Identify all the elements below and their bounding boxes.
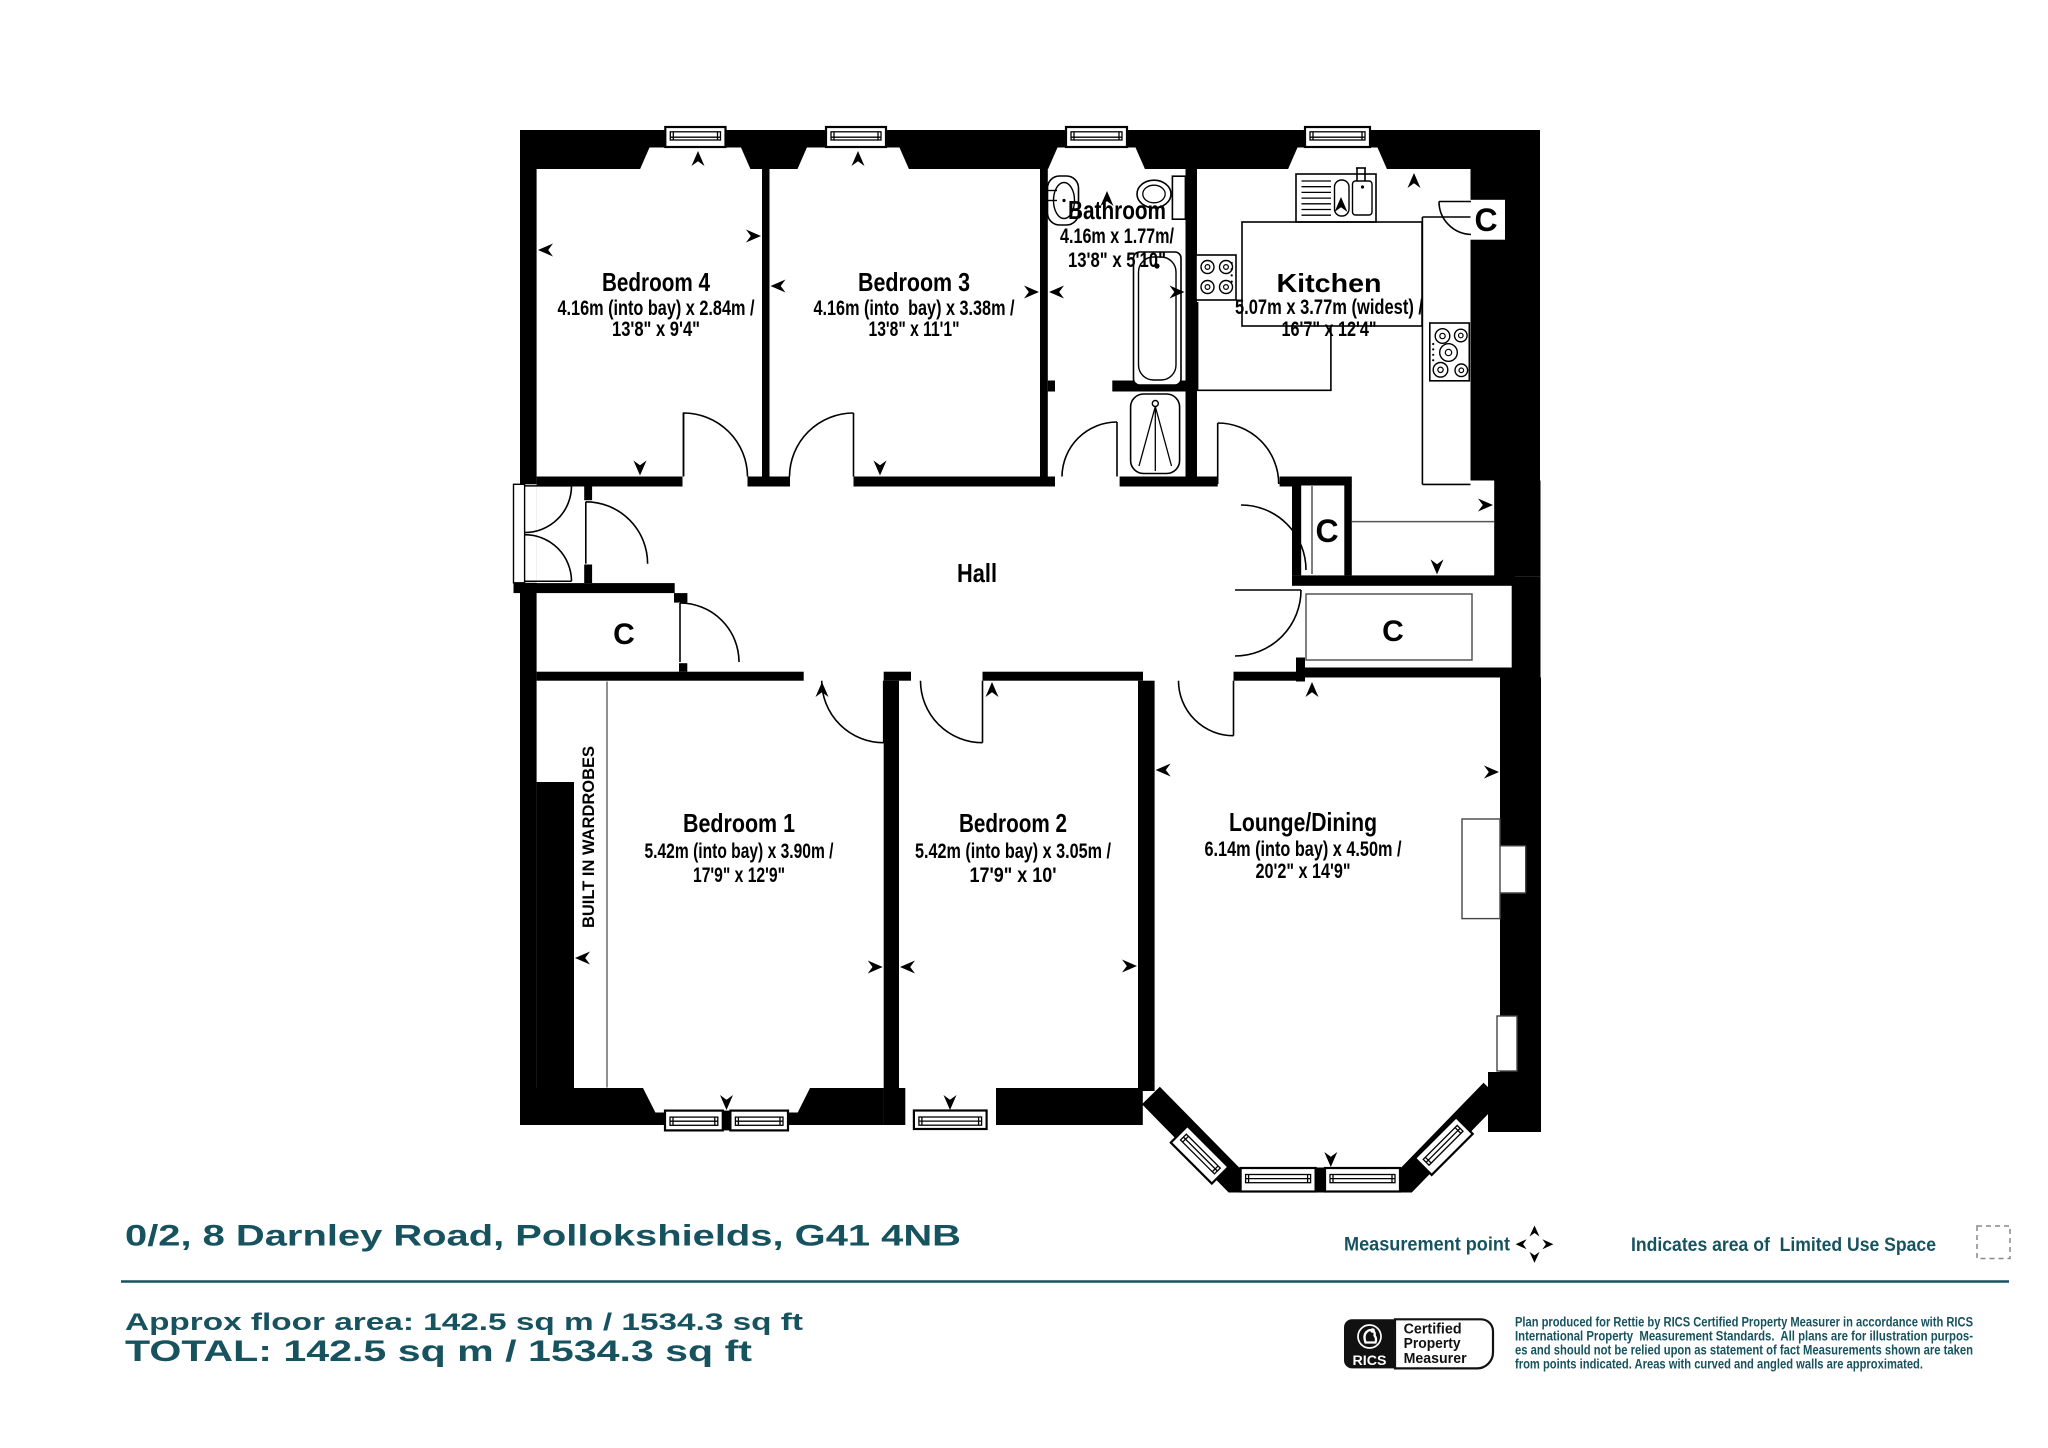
svg-text:Bedroom 1: Bedroom 1 bbox=[683, 808, 795, 838]
svg-text:13'8" x 5'10": 13'8" x 5'10" bbox=[1068, 249, 1166, 272]
svg-text:C: C bbox=[1474, 202, 1497, 238]
svg-text:TOTAL: 142.5 sq m / 1534.3 sq: TOTAL: 142.5 sq m / 1534.3 sq ft bbox=[125, 1335, 752, 1368]
svg-text:C: C bbox=[1382, 615, 1404, 648]
svg-text:20'2" x 14'9": 20'2" x 14'9" bbox=[1256, 860, 1351, 883]
svg-text:17'9" x 10': 17'9" x 10' bbox=[970, 864, 1057, 887]
svg-text:0/2, 8 Darnley Road, Pollokshi: 0/2, 8 Darnley Road, Pollokshields, G41 … bbox=[125, 1219, 961, 1252]
svg-text:es and should not be relied up: es and should not be relied upon as stat… bbox=[1515, 1342, 1973, 1357]
svg-text:Bedroom 2: Bedroom 2 bbox=[959, 808, 1067, 838]
svg-text:5.42m (into bay) x 3.90m /: 5.42m (into bay) x 3.90m / bbox=[645, 840, 834, 863]
svg-text:4.16m (into bay) x 2.84m /: 4.16m (into bay) x 2.84m / bbox=[558, 297, 755, 320]
svg-text:Approx floor area: 142.5 sq m: Approx floor area: 142.5 sq m / 1534.3 s… bbox=[125, 1309, 803, 1336]
svg-text:International Property Measur: International Property Measurement Stand… bbox=[1515, 1328, 1973, 1343]
svg-text:BUILT IN WARDROBES: BUILT IN WARDROBES bbox=[580, 746, 598, 928]
svg-text:RICS: RICS bbox=[1353, 1353, 1387, 1368]
svg-text:Bedroom 4: Bedroom 4 bbox=[602, 267, 710, 297]
svg-text:Bathroom: Bathroom bbox=[1068, 195, 1166, 225]
svg-text:from points indicated. Areas w: from points indicated. Areas with curved… bbox=[1515, 1356, 1923, 1371]
svg-text:C: C bbox=[1315, 513, 1338, 549]
svg-text:Indicates area of Limited Use: Indicates area of Limited Use Space bbox=[1631, 1235, 1936, 1256]
svg-text:13'8" x 11'1": 13'8" x 11'1" bbox=[869, 318, 960, 341]
svg-text:4.16m (into bay) x 3.38m /: 4.16m (into bay) x 3.38m / bbox=[814, 297, 1015, 320]
svg-text:6.14m (into bay) x 4.50m /: 6.14m (into bay) x 4.50m / bbox=[1205, 838, 1402, 861]
svg-text:Bedroom 3: Bedroom 3 bbox=[858, 267, 970, 297]
svg-text:4.16m x 1.77m/: 4.16m x 1.77m/ bbox=[1060, 225, 1174, 248]
svg-text:Measurement point: Measurement point bbox=[1344, 1235, 1511, 1256]
svg-text:5.07m x 3.77m (widest) /: 5.07m x 3.77m (widest) / bbox=[1235, 296, 1423, 319]
svg-text:13'8" x 9'4": 13'8" x 9'4" bbox=[612, 318, 700, 341]
svg-text:Measurer: Measurer bbox=[1404, 1351, 1467, 1367]
svg-text:Kitchen: Kitchen bbox=[1277, 268, 1382, 298]
svg-text:Hall: Hall bbox=[957, 558, 997, 588]
svg-text:Plan produced for Rettie by RI: Plan produced for Rettie by RICS Certifi… bbox=[1515, 1314, 1973, 1329]
svg-text:Lounge/Dining: Lounge/Dining bbox=[1229, 807, 1377, 837]
svg-text:16'7" x 12'4": 16'7" x 12'4" bbox=[1282, 318, 1377, 341]
svg-text:5.42m (into bay) x 3.05m /: 5.42m (into bay) x 3.05m / bbox=[915, 840, 1111, 863]
svg-text:Certified: Certified bbox=[1404, 1321, 1462, 1337]
svg-text:Property: Property bbox=[1404, 1336, 1461, 1352]
svg-text:C: C bbox=[613, 618, 635, 651]
svg-text:17'9" x 12'9": 17'9" x 12'9" bbox=[693, 864, 785, 887]
